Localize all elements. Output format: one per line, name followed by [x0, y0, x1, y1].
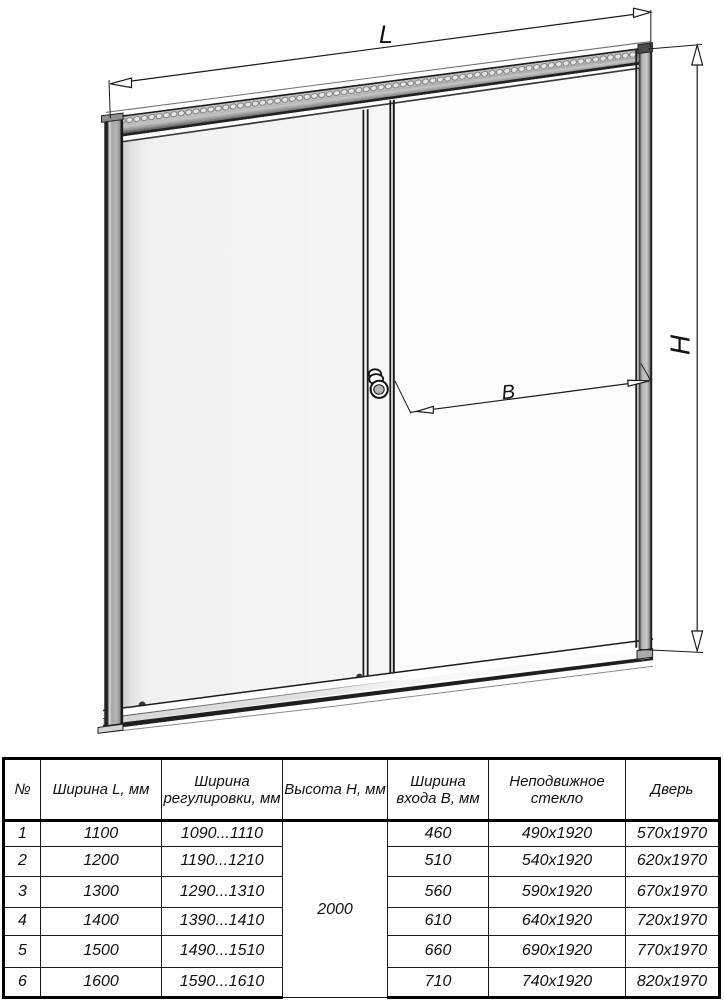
- svg-text:B: B: [500, 381, 516, 404]
- svg-text:H: H: [665, 334, 696, 355]
- svg-text:L: L: [379, 21, 393, 49]
